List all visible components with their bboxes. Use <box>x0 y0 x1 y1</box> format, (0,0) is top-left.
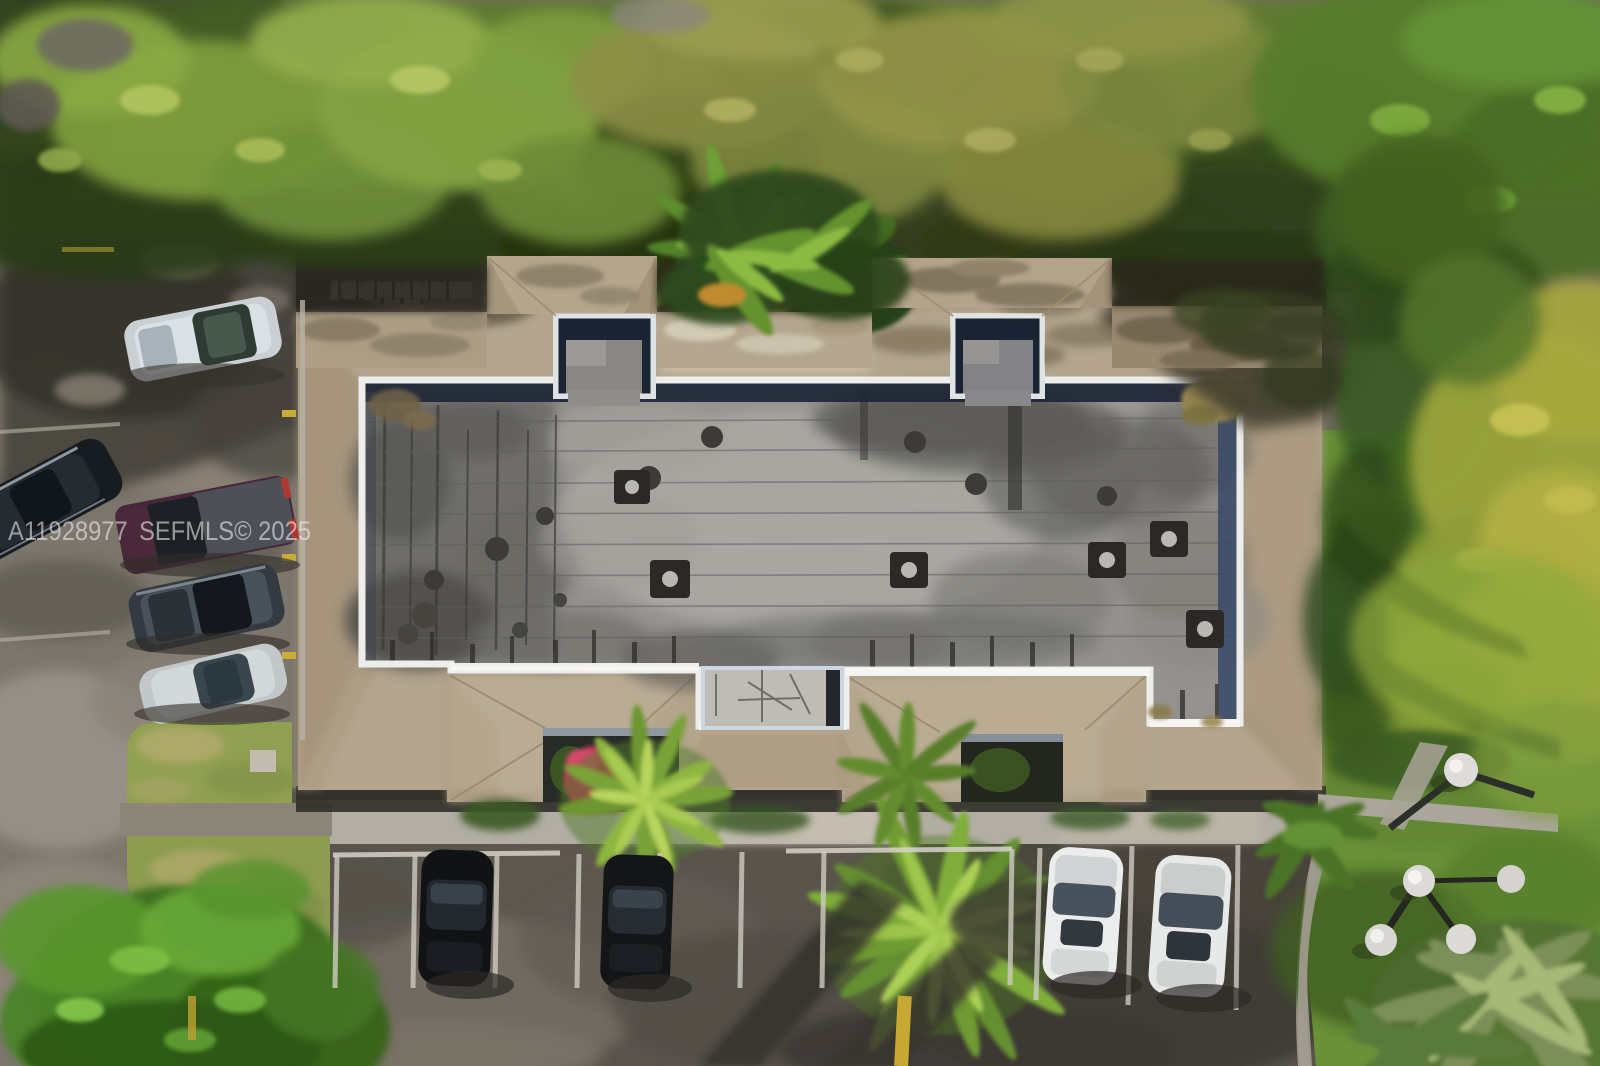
svg-text:A11928977 SEFMLS© 2025: A11928977 SEFMLS© 2025 <box>8 516 311 546</box>
